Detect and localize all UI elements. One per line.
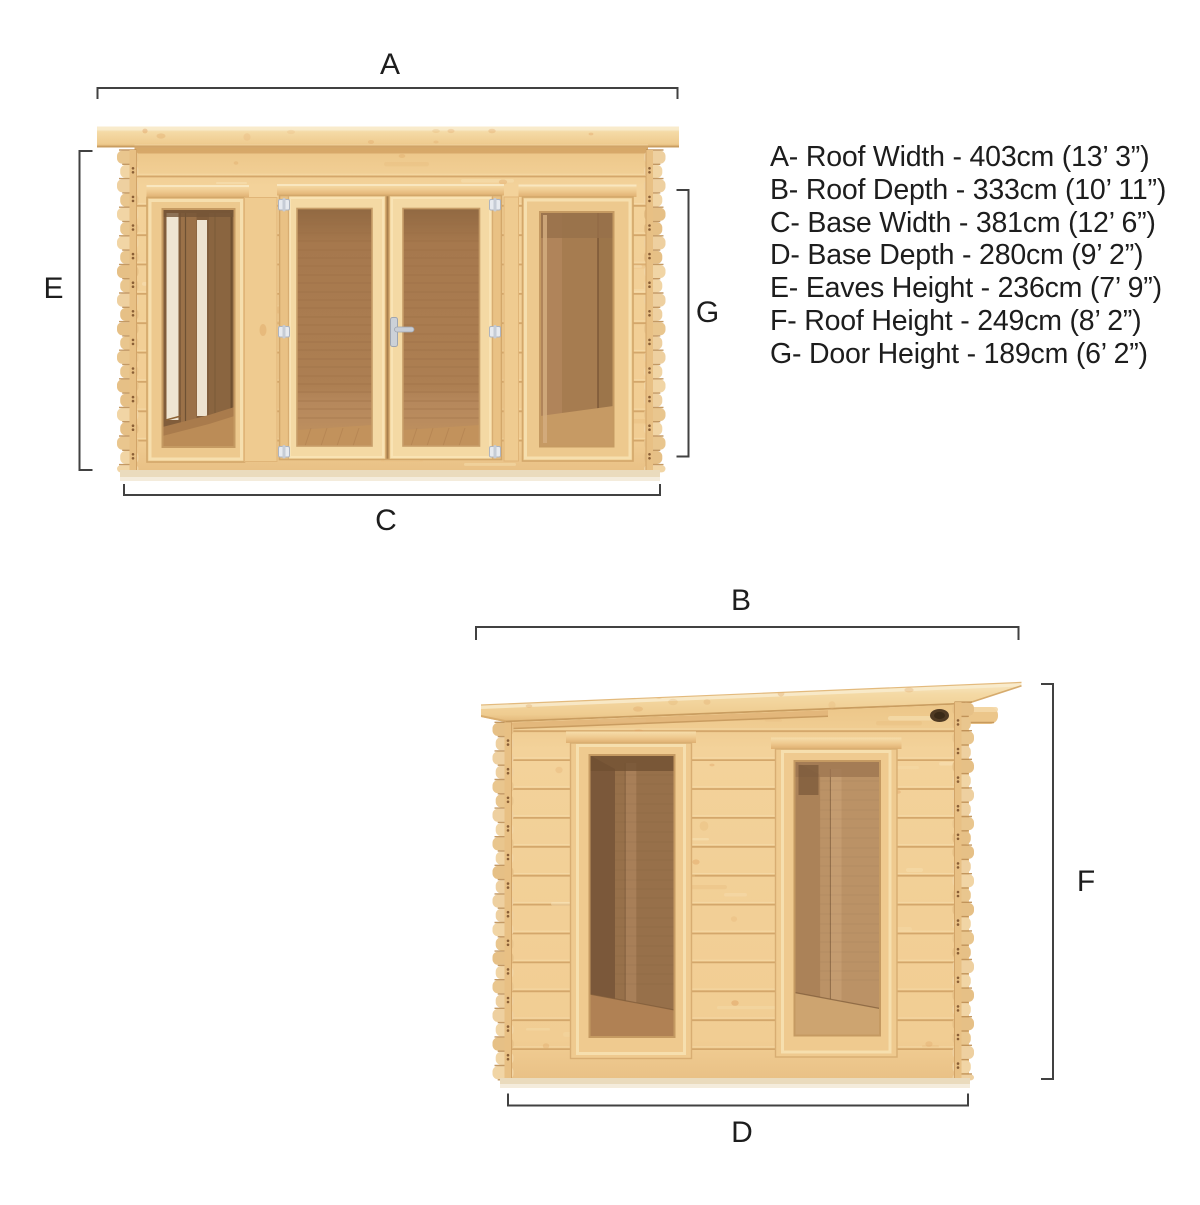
svg-text:C: C bbox=[375, 504, 397, 537]
svg-text:D- Base Depth - 280cm (9’ 2”): D- Base Depth - 280cm (9’ 2”) bbox=[770, 239, 1143, 271]
svg-text:E- Eaves Height - 236cm (7’ 9”: E- Eaves Height - 236cm (7’ 9”) bbox=[770, 272, 1162, 304]
svg-text:A: A bbox=[380, 48, 400, 81]
svg-text:D: D bbox=[731, 1116, 753, 1149]
svg-text:B: B bbox=[731, 584, 751, 617]
svg-text:G- Door Height - 189cm (6’ 2”): G- Door Height - 189cm (6’ 2”) bbox=[770, 338, 1148, 370]
svg-text:B- Roof Depth - 333cm (10’ 11”: B- Roof Depth - 333cm (10’ 11”) bbox=[770, 174, 1166, 206]
svg-text:E: E bbox=[43, 272, 63, 305]
svg-text:G: G bbox=[696, 296, 719, 329]
svg-text:F: F bbox=[1077, 865, 1095, 898]
svg-text:F- Roof Height - 249cm (8’ 2”): F- Roof Height - 249cm (8’ 2”) bbox=[770, 305, 1141, 337]
svg-text:C- Base Width - 381cm (12’ 6”): C- Base Width - 381cm (12’ 6”) bbox=[770, 207, 1156, 239]
svg-text:A- Roof Width - 403cm (13’ 3”): A- Roof Width - 403cm (13’ 3”) bbox=[770, 141, 1149, 173]
